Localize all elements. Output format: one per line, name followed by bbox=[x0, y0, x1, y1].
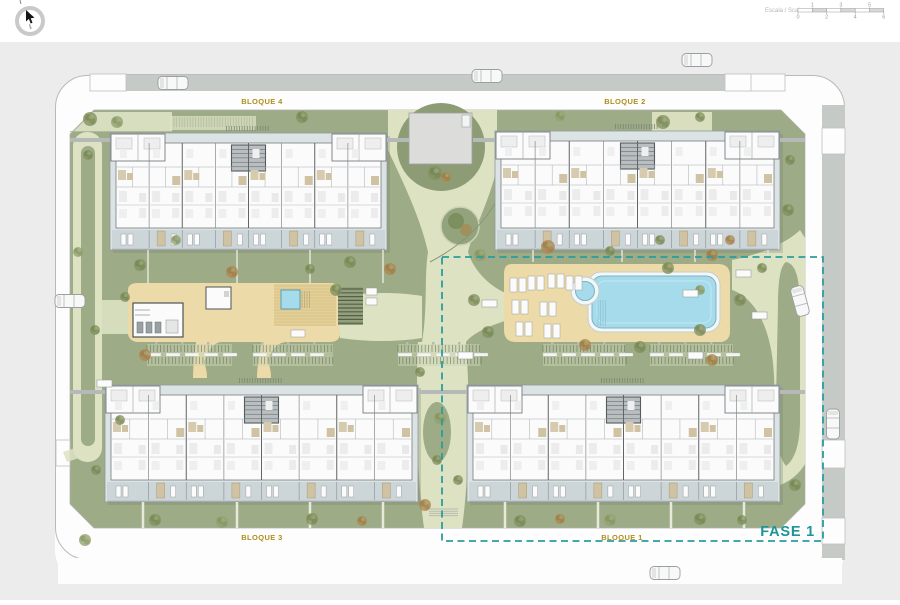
svg-text:BLOQUE 4: BLOQUE 4 bbox=[241, 97, 283, 106]
svg-text:FASE 1: FASE 1 bbox=[760, 524, 815, 540]
svg-text:BLOQUE 3: BLOQUE 3 bbox=[241, 533, 283, 542]
svg-text:BLOQUE 1: BLOQUE 1 bbox=[601, 533, 643, 542]
svg-text:2: 2 bbox=[825, 15, 828, 21]
svg-text:6: 6 bbox=[882, 15, 885, 21]
svg-text:0: 0 bbox=[796, 15, 799, 21]
svg-text:4: 4 bbox=[854, 15, 857, 21]
svg-text:BLOQUE 2: BLOQUE 2 bbox=[604, 97, 646, 106]
